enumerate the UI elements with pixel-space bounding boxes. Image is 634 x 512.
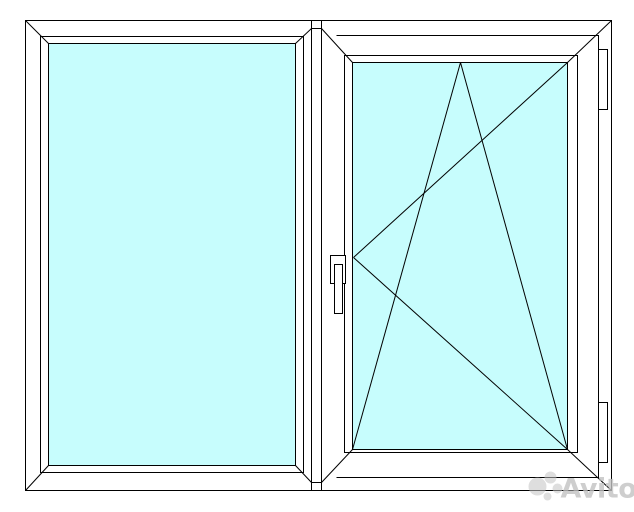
right-glass-pane (353, 63, 568, 450)
right-panel-tilt-turn (322, 21, 612, 491)
avito-logo-circle-small (544, 493, 552, 501)
left-panel-fixed (26, 21, 312, 491)
window-diagram-image: Avito (0, 0, 634, 512)
avito-logo-circle-large (529, 478, 547, 496)
hinge-top (599, 50, 608, 110)
watermark-text: Avito (561, 474, 634, 505)
hinge-bottom (599, 403, 608, 463)
drawing-root: Avito (26, 21, 634, 505)
avito-logo-circle-top (545, 472, 557, 484)
handle-grip (335, 265, 343, 314)
coupler-profile (312, 29, 322, 483)
frame-coupler (312, 21, 322, 491)
left-glass-pane (49, 44, 296, 466)
window-drawing: Avito (0, 0, 634, 512)
